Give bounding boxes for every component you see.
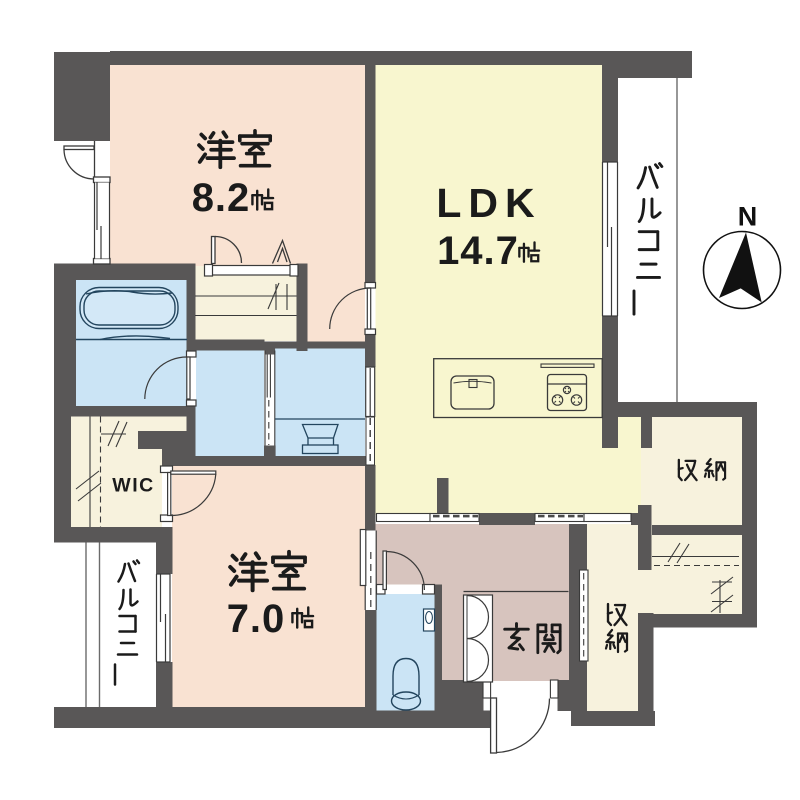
svg-text:WIC: WIC <box>112 475 154 497</box>
svg-text:7.0: 7.0 <box>227 597 286 641</box>
svg-text:N: N <box>738 202 758 232</box>
svg-text:8.2: 8.2 <box>192 176 251 220</box>
svg-text:14.7: 14.7 <box>437 229 519 273</box>
svg-text:LDK: LDK <box>436 180 541 226</box>
